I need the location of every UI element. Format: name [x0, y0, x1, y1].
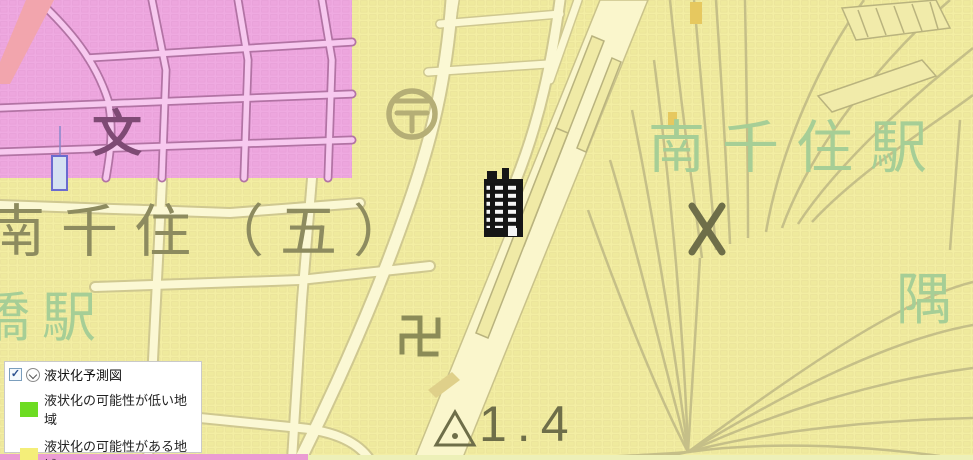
legend-title: 液状化予測図: [44, 365, 122, 384]
layer-checkbox[interactable]: ✓: [9, 368, 22, 381]
high-risk-zone: 文: [0, 0, 352, 190]
map-canvas[interactable]: 文: [0, 0, 973, 460]
school-icon: 文: [92, 106, 142, 162]
possible-risk-label: 液状化の可能性がある地域: [44, 436, 197, 460]
legend-header: ✓ 液状化予測図: [5, 362, 201, 386]
low-risk-label: 液状化の可能性が低い地域: [44, 390, 197, 428]
legend-panel: ✓ 液状化予測図 液状化の可能性が低い地域 液状化の可能性がある地域 液状化の可…: [4, 361, 202, 453]
possible-risk-swatch: [20, 448, 38, 460]
low-risk-swatch: [20, 402, 38, 417]
collapse-chevron-icon[interactable]: [26, 368, 40, 382]
legend-item-possible: 液状化の可能性がある地域: [5, 432, 201, 460]
bottom-low-risk-strip: [308, 455, 973, 460]
legend-item-low: 液状化の可能性が低い地域: [5, 386, 201, 432]
